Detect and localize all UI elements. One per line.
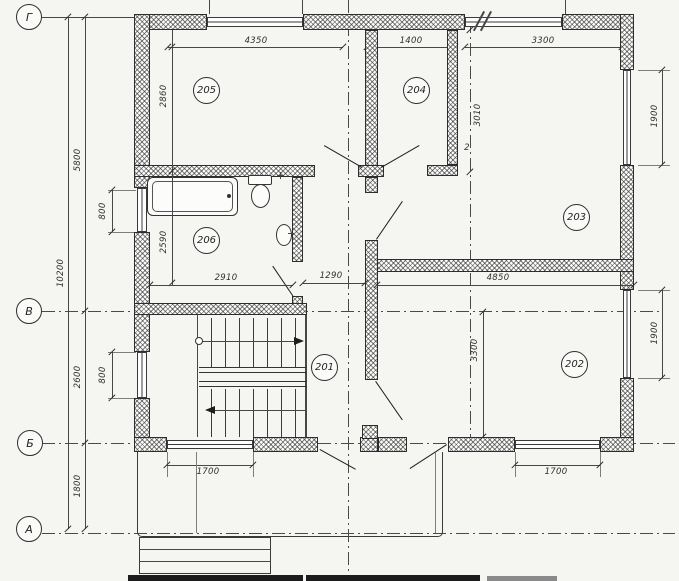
room-number-205: 205 [197, 85, 216, 96]
dim-label-2600: 2600 [74, 366, 83, 389]
dim-line-800a [112, 190, 113, 232]
stair-stringer [305, 315, 307, 437]
dim-tick [81, 525, 88, 532]
bathtub-drain [227, 194, 231, 198]
jamb-tick [302, 0, 303, 14]
room-bubble-203: 203 [563, 204, 590, 231]
wall-205-204 [365, 30, 378, 167]
room-bubble-205: 205 [193, 77, 220, 104]
door-leaf-bathroom [272, 266, 294, 297]
axis-label-a: А [25, 523, 33, 536]
dim-tick [64, 525, 71, 532]
dim-label-800a: 800 [99, 202, 108, 219]
dim-line-800b [112, 352, 113, 398]
wall-foot [427, 165, 458, 176]
window [623, 70, 631, 165]
scan-artifact-bar [306, 575, 480, 581]
dim-label-1900a: 1900 [651, 105, 660, 128]
axis-label-g: Г [26, 11, 32, 24]
terrace-guide [196, 452, 197, 533]
terrace-outline [137, 452, 443, 537]
wall-segment [620, 14, 634, 70]
stair-tread [211, 318, 212, 367]
wall-segment [600, 437, 634, 452]
room-number-206: 206 [197, 235, 216, 246]
room-number-204: 204 [407, 85, 426, 96]
wall-segment [134, 232, 150, 352]
walkline-arrow-down [205, 406, 215, 414]
vent-mark [280, 172, 281, 179]
axis-label-b: Б [26, 437, 34, 450]
wall-segment [253, 437, 318, 452]
dim-ext [638, 165, 670, 166]
dim-label-1900b: 1900 [651, 322, 660, 345]
wall-205-206 [134, 165, 315, 177]
dim-label-3300v: 3300 [471, 339, 480, 362]
wall-pier [362, 425, 378, 439]
room-number-203: 203 [567, 212, 586, 223]
dim-ext [638, 290, 670, 291]
dim-line-1400 [367, 47, 455, 48]
dim-label-1400: 1400 [400, 37, 423, 46]
door-leaf-hall-202 [376, 201, 403, 240]
dim-ext [638, 378, 670, 379]
wall-segment [378, 437, 407, 452]
axis-label-2: 2 [464, 144, 470, 153]
stair-tread [267, 318, 268, 367]
stair-landing-rail [199, 367, 307, 373]
axis-bubble-g: Г [16, 4, 42, 30]
stair-landing-rail [199, 381, 307, 387]
wall-segment [134, 14, 150, 188]
stair-tread [253, 389, 254, 437]
stair-edge [197, 315, 198, 437]
dim-line-total [68, 17, 69, 529]
window [137, 352, 147, 398]
dim-label-10200: 10200 [57, 259, 66, 288]
dim-line-segments [85, 17, 86, 529]
stair-tread [239, 318, 240, 367]
room-bubble-206: 206 [193, 227, 220, 254]
dim-line-1900a [662, 70, 663, 165]
door-leaf-204 [381, 145, 420, 168]
door-leaf-202 [375, 381, 403, 420]
stair-tread [239, 389, 240, 437]
dim-label-4350: 4350 [245, 37, 268, 46]
toilet-bowl [251, 184, 270, 208]
dim-label-5800: 5800 [74, 149, 83, 172]
wall-pier [360, 437, 378, 452]
dim-label-800b: 800 [99, 366, 108, 383]
stair-tread [281, 318, 282, 367]
axis-bubble-v: В [16, 298, 42, 324]
scan-artifact-bar [487, 576, 557, 581]
bathtub-inner [152, 181, 233, 212]
stair-tread [295, 389, 296, 437]
dim-label-2590: 2590 [160, 231, 169, 254]
axis-line-g [42, 17, 134, 18]
dim-label-1290: 1290 [320, 272, 343, 281]
wall-axis-v [134, 303, 307, 315]
dim-label-3010: 3010 [474, 104, 483, 127]
jamb-tick [565, 0, 566, 14]
stair-walkline-up [199, 341, 295, 342]
dim-tick [339, 43, 346, 50]
window [515, 440, 600, 449]
step-line [139, 561, 271, 562]
dim-label-4850: 4850 [487, 274, 510, 283]
dim-label-3300: 3300 [532, 37, 555, 46]
stair-tread [225, 389, 226, 437]
stair-walkline-down [212, 410, 306, 411]
dim-tick [289, 281, 296, 288]
room-bubble-201: 201 [311, 354, 338, 381]
dim-line-2860-2590 [172, 30, 173, 285]
dim-label-2860: 2860 [160, 85, 169, 108]
axis-bubble-b: Б [17, 430, 43, 456]
stair-tread [267, 389, 268, 437]
center-axis-line-2 [470, 20, 471, 437]
axis-label-v: В [25, 305, 33, 318]
stair-tread [225, 318, 226, 367]
dim-line-1900b [662, 290, 663, 378]
sink-tap [288, 233, 294, 234]
window [207, 17, 303, 27]
room-bubble-202: 202 [561, 351, 588, 378]
dim-line-2910 [150, 285, 293, 286]
dim-label-2910: 2910 [215, 274, 238, 283]
dim-ext [638, 70, 670, 71]
dim-line-3300 [465, 47, 622, 48]
room-number-201: 201 [315, 362, 334, 373]
window [167, 440, 253, 449]
dim-line-3300v [483, 312, 484, 437]
window [623, 290, 631, 378]
wall-203-202 [377, 259, 634, 272]
stair-tread [253, 318, 254, 367]
dim-label-1700b: 1700 [545, 468, 568, 477]
walkline-start-circle [195, 337, 203, 345]
room-bubble-204: 204 [403, 77, 430, 104]
sink [276, 224, 292, 246]
entrance-steps [139, 537, 271, 574]
terrace-guide [435, 452, 436, 533]
jamb-tick [209, 0, 210, 14]
dim-line-4850 [377, 285, 634, 286]
wall-204-203 [447, 30, 458, 165]
dim-line-1290 [303, 283, 365, 284]
step-line [139, 549, 271, 550]
wall-segment [303, 14, 465, 30]
dim-label-1800: 1800 [74, 475, 83, 498]
wall-segment [134, 437, 167, 452]
axis-bubble-a: А [16, 516, 42, 542]
walkline-arrow-up [294, 337, 304, 345]
window [137, 188, 147, 232]
door-leaf-205 [324, 145, 363, 168]
stair-tread [281, 389, 282, 437]
wall-bath-right [292, 177, 303, 262]
wall-stub [365, 177, 378, 193]
dim-line-4350 [168, 47, 343, 48]
scan-artifact-bar [128, 575, 303, 581]
floor-plan-canvas: Г В Б А 10200 5800 2600 1800 800 800 435… [0, 0, 679, 581]
room-number-202: 202 [565, 359, 584, 370]
